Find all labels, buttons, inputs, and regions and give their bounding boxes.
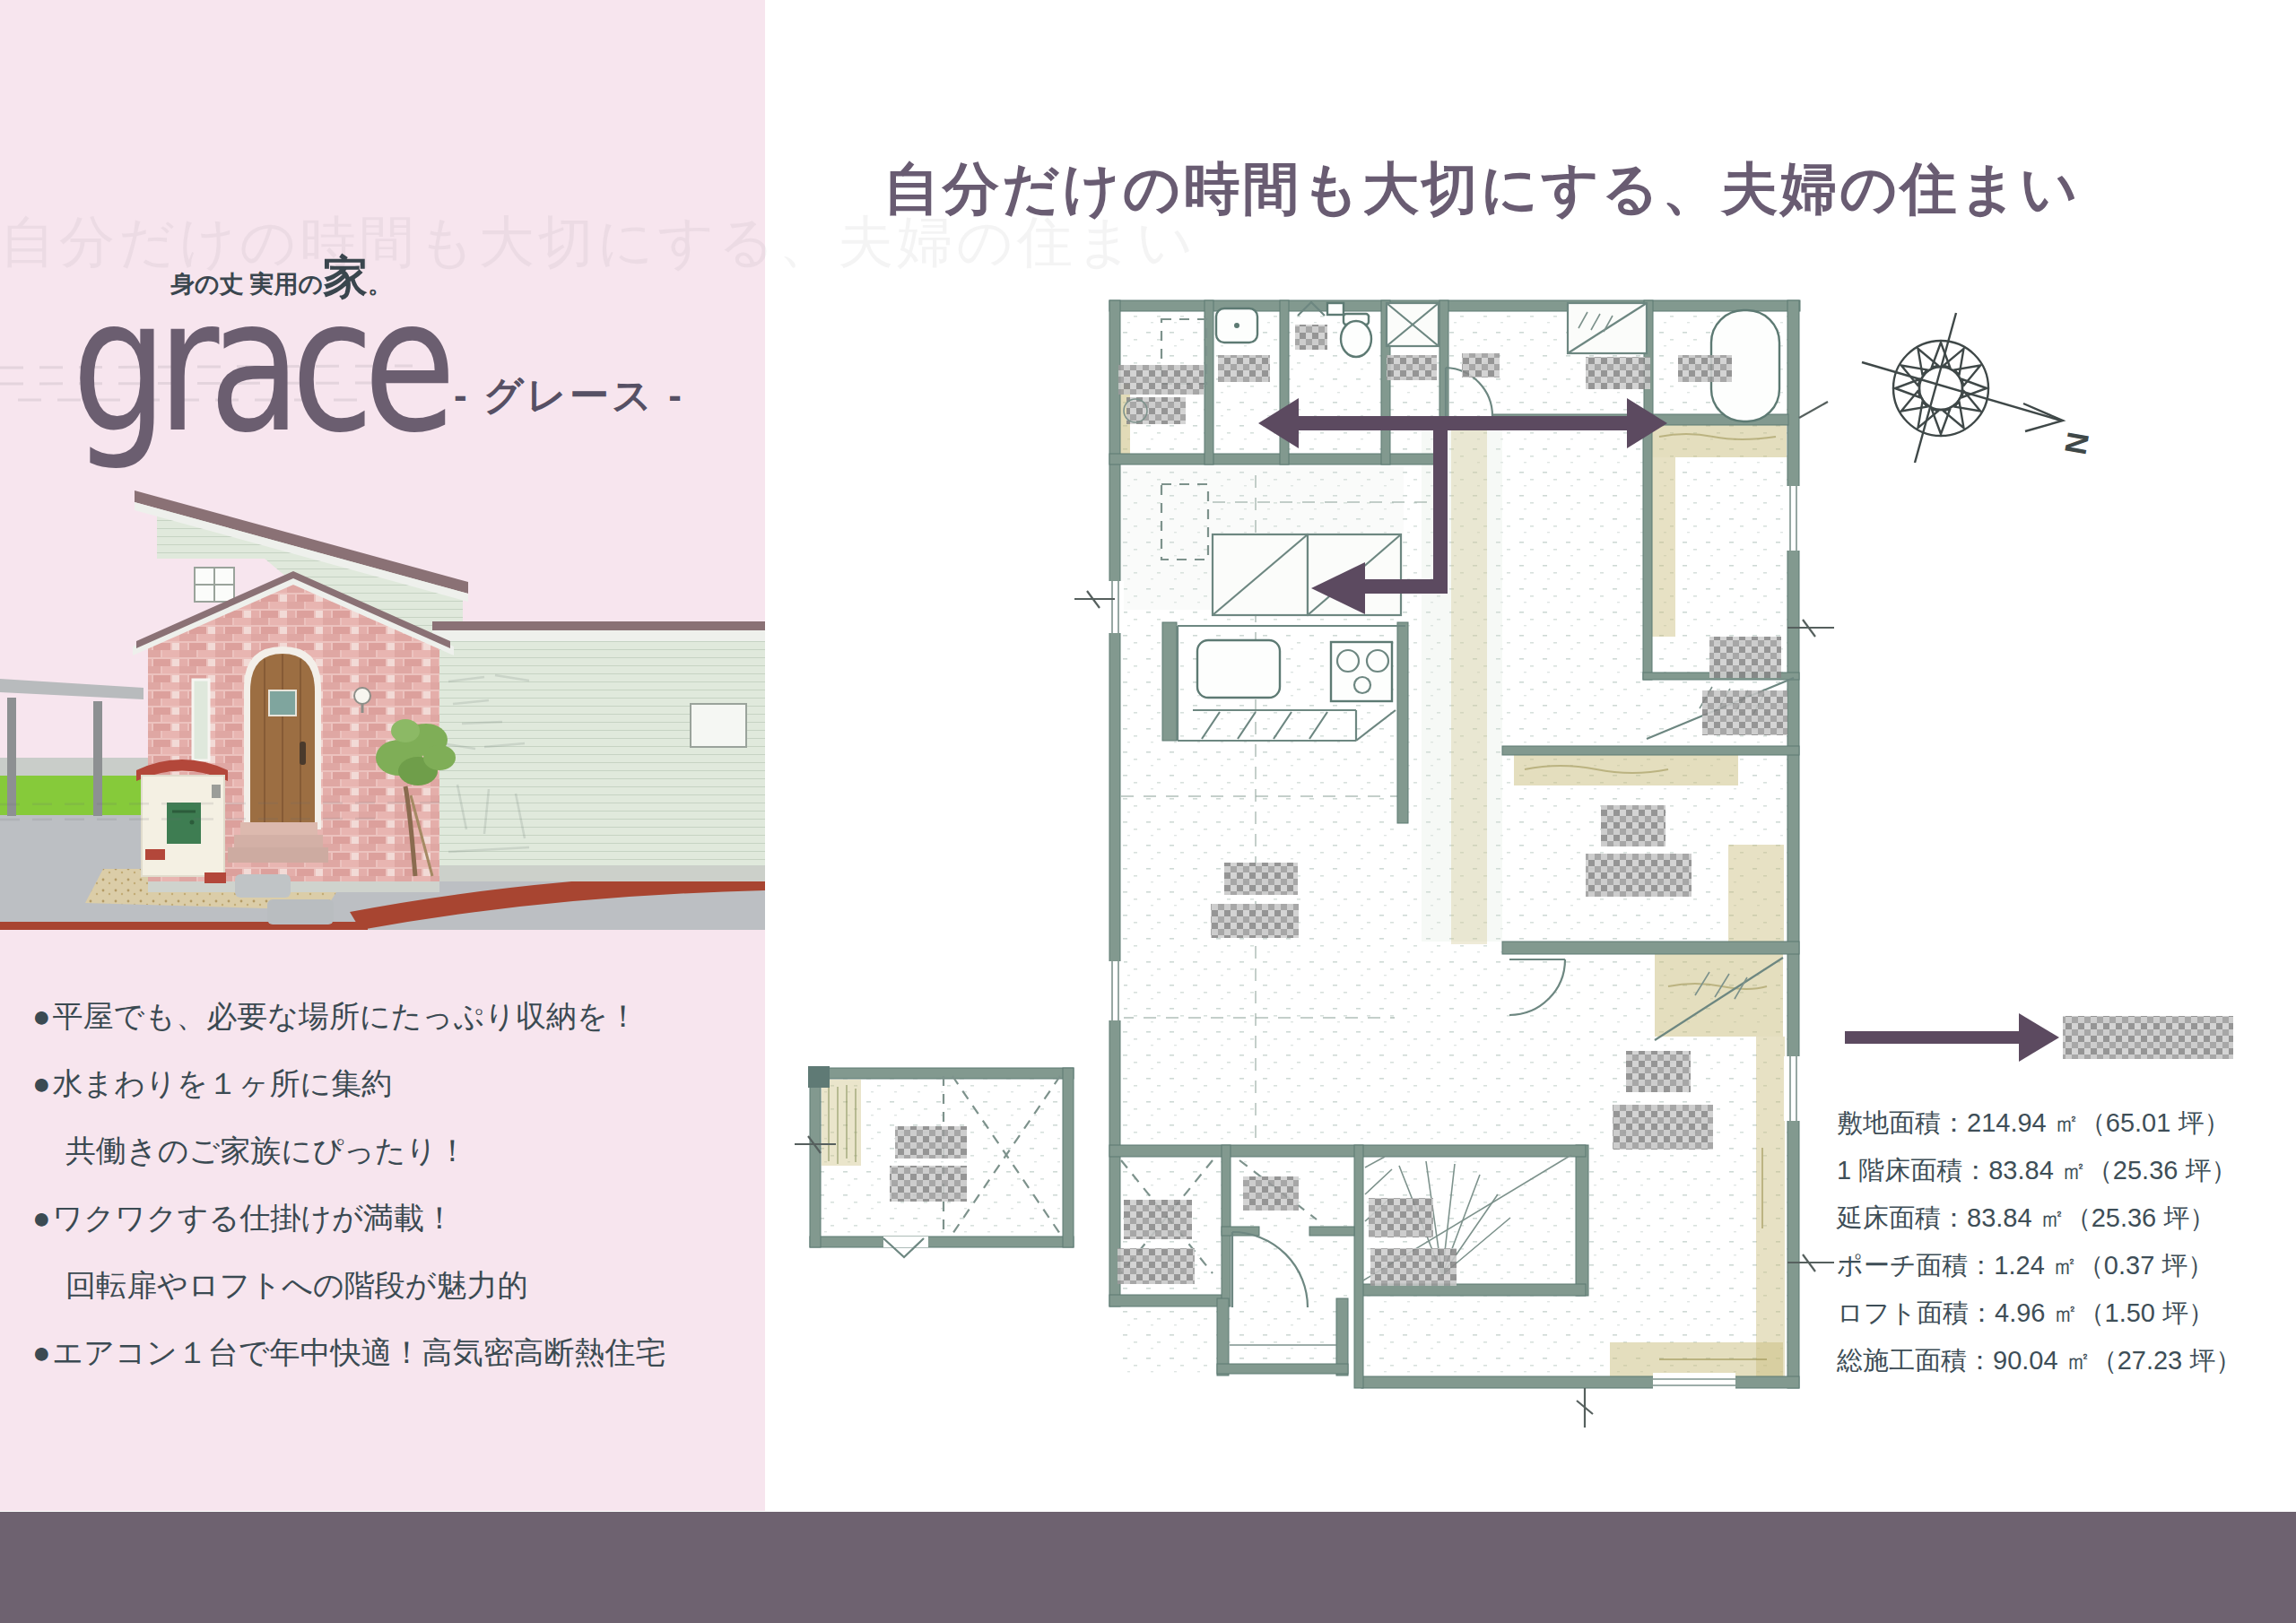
brick-accent-2 [204,872,226,883]
storage-closets [1121,303,1794,1273]
censored-room-labels [1118,325,1787,1286]
compass-icon: N [1862,313,2096,463]
page-title: 自分だけの時間も大切にする、夫婦の住まい [883,151,2081,228]
stepping-stone-1 [235,874,291,898]
brand-reading: - グレース - [454,369,684,422]
walls [1109,300,1800,1388]
bullet-dot-icon: ● [32,1066,51,1100]
mailbox [167,803,201,844]
feature-bullet-list: ●平屋でも、必要な場所にたっぷり収納を！ ●水まわりを１ヶ所に集約 共働きのご家… [32,983,666,1386]
area-detail-line: ロフト面積：4.96 ㎡（1.50 坪） [1837,1289,2241,1337]
bullet-text: エアコン１台で年中快適！高気密高断熱住宅 [53,1335,666,1369]
area-detail-line: 1 階床面積：83.84 ㎡（25.36 坪） [1837,1147,2241,1194]
feature-bullet: 共働きのご家族にぴったり！ [32,1117,666,1185]
area-details-list: 敷地面積：214.94 ㎡（65.01 坪） 1 階床面積：83.84 ㎡（25… [1837,1099,2241,1384]
censored-room-label [895,1126,967,1159]
carport-post-1 [7,698,16,816]
slit-window [193,680,209,760]
toilet-icon [1341,314,1371,357]
closet-floor-accents [1118,384,1787,1378]
right-foundation [439,865,765,881]
door-handle [300,742,306,765]
bullet-dot-icon: ● [32,999,51,1033]
area-detail-line: 延床面積：83.84 ㎡（25.36 坪） [1837,1194,2241,1242]
doors [1230,302,1565,1345]
main-floor-plan [1074,300,1834,1428]
brick-accent-1 [145,849,165,860]
flow-arrow-horizontal [1258,398,1667,448]
kitchen-counter [1178,626,1405,741]
flow-arrow-down-left [1311,423,1448,614]
loft-plan [795,1066,1074,1257]
feature-bullet: ●水まわりを１ヶ所に集約 [32,1050,666,1117]
windows [1106,486,1803,1392]
bullet-dot-icon: ● [32,1201,51,1235]
feature-bullet: ●エアコン１台で年中快適！高気密高断熱住宅 [32,1319,666,1386]
interphone [212,785,221,798]
side-window [691,704,746,747]
washbasin-icon [1216,308,1257,343]
feature-bullet: ●ワクワクする仕掛けが満載！ [32,1185,666,1252]
area-pointer-arrow [1845,1013,2059,1062]
censored-annotation [2063,1016,2233,1059]
bathtub-icon [1711,310,1779,421]
bullet-dot-icon: ● [32,1335,51,1369]
kitchen-sink-icon [1197,640,1280,698]
porch-lamp [354,688,370,704]
front-foundation [148,881,439,892]
feature-bullet: ●平屋でも、必要な場所にたっぷり収納を！ [32,983,666,1050]
bullet-text: 水まわりを１ヶ所に集約 [53,1066,393,1100]
step-1 [240,822,317,835]
lawn [0,776,157,819]
censored-room-label [890,1166,967,1202]
bullet-text: 平屋でも、必要な場所にたっぷり収納を！ [53,999,639,1033]
area-detail-line: 敷地面積：214.94 ㎡（65.01 坪） [1837,1099,2241,1147]
brand-logo: grace [72,274,446,458]
right-wing-eave [432,630,765,641]
area-detail-line: ポーチ面積：1.24 ㎡（0.37 坪） [1837,1242,2241,1289]
bullet-text: ワクワクする仕掛けが満載！ [53,1201,455,1235]
bullet-text: 共働きのご家族にぴったり！ [65,1133,467,1167]
stove-icon [1331,642,1392,701]
area-detail-line: 総施工面積：90.04 ㎡（27.23 坪） [1837,1337,2241,1384]
carport-roof [0,679,143,699]
loft-stairs [1363,1155,1571,1280]
house-photo [0,489,765,930]
stepping-stone-2 [267,899,334,924]
right-wing-wall [439,639,765,869]
dimension-ticks [1074,402,1834,1428]
compass-north-label: N [2058,430,2096,457]
door-window [269,690,296,716]
footer-bar [0,1512,2296,1623]
flyer-page: 自分だけの時間も大切にする、夫婦の住まい 身の丈 実用の家。 grace - グ… [0,0,2296,1623]
feature-bullet: 回転扉やロフトへの階段が魅力的 [32,1252,666,1319]
step-2 [234,835,323,847]
bullet-text: 回転扉やロフトへの階段が魅力的 [65,1268,528,1302]
carport-post-2 [93,701,102,816]
step-3 [228,847,328,863]
